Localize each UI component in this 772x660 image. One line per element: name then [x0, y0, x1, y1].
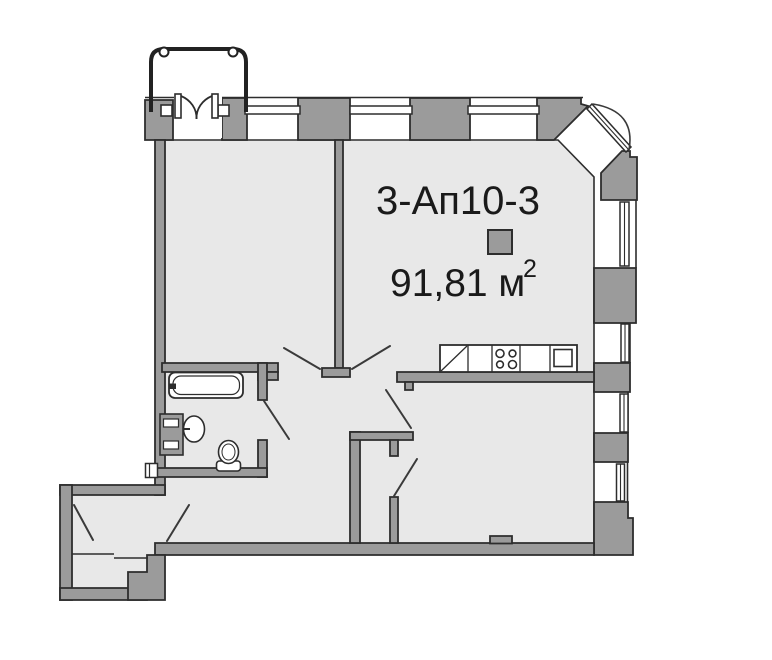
- railing-post-right: [229, 48, 238, 57]
- wall-room-divider: [335, 140, 343, 368]
- bathtub-tap-icon: [170, 384, 177, 390]
- apartment-code-label: 3-Ап10-3: [376, 179, 540, 223]
- wall-bottom-pillar: [490, 536, 512, 544]
- wall-top-seg-2: [298, 98, 350, 140]
- balcony-door-jamb-left: [175, 94, 181, 118]
- vestibule-wall-top: [60, 485, 165, 495]
- wall-right-pier-2: [594, 363, 630, 392]
- chamfer-balcony-door: [587, 104, 631, 152]
- kitchen-sink-icon: [554, 350, 572, 367]
- wall-divider-foot: [322, 368, 350, 377]
- wall-kitchen-stub: [405, 382, 413, 390]
- wall-top-seg-4-chamfer: [537, 98, 588, 140]
- area-label: 91,81 м: [390, 262, 525, 305]
- kitchen-counter: [440, 345, 577, 372]
- wall-corridor-vertical: [350, 432, 360, 543]
- bathtub: [169, 373, 243, 399]
- wall-chamfer-corner: [601, 151, 637, 200]
- wall-bottom-right-corner: [594, 502, 633, 555]
- window-sill-2: [350, 106, 412, 114]
- wall-bath-right-upper: [258, 363, 267, 400]
- wall-corridor-top: [350, 432, 413, 440]
- wall-bath-bottom: [155, 468, 267, 477]
- area-superscript: 2: [523, 255, 537, 283]
- windows-top: [245, 106, 539, 114]
- floor-plan-page: 3-Ап10-3 91,81 м 2: [0, 0, 772, 660]
- railing-post-left: [160, 48, 169, 57]
- window-sill-1: [245, 106, 300, 114]
- vestibule-wall-left: [60, 485, 72, 600]
- wall-right-pier-3: [594, 433, 628, 462]
- utility-meter: [146, 464, 158, 478]
- wall-corridor-stub: [390, 440, 398, 456]
- wall-kitchen: [397, 372, 594, 382]
- balcony-door-jamb-right: [212, 94, 218, 118]
- wall-closet: [390, 497, 398, 543]
- toilet: [217, 441, 241, 472]
- floor-plan-svg: 3-Ап10-3 91,81 м 2: [0, 0, 772, 660]
- railing-anchor-right: [218, 105, 229, 116]
- wall-top-seg-3: [410, 98, 470, 140]
- legend-square: [488, 230, 512, 254]
- wall-bottom: [155, 543, 594, 555]
- railing-anchor-left: [161, 105, 172, 116]
- wall-right-pier-1: [594, 268, 636, 323]
- window-sill-3: [468, 106, 539, 114]
